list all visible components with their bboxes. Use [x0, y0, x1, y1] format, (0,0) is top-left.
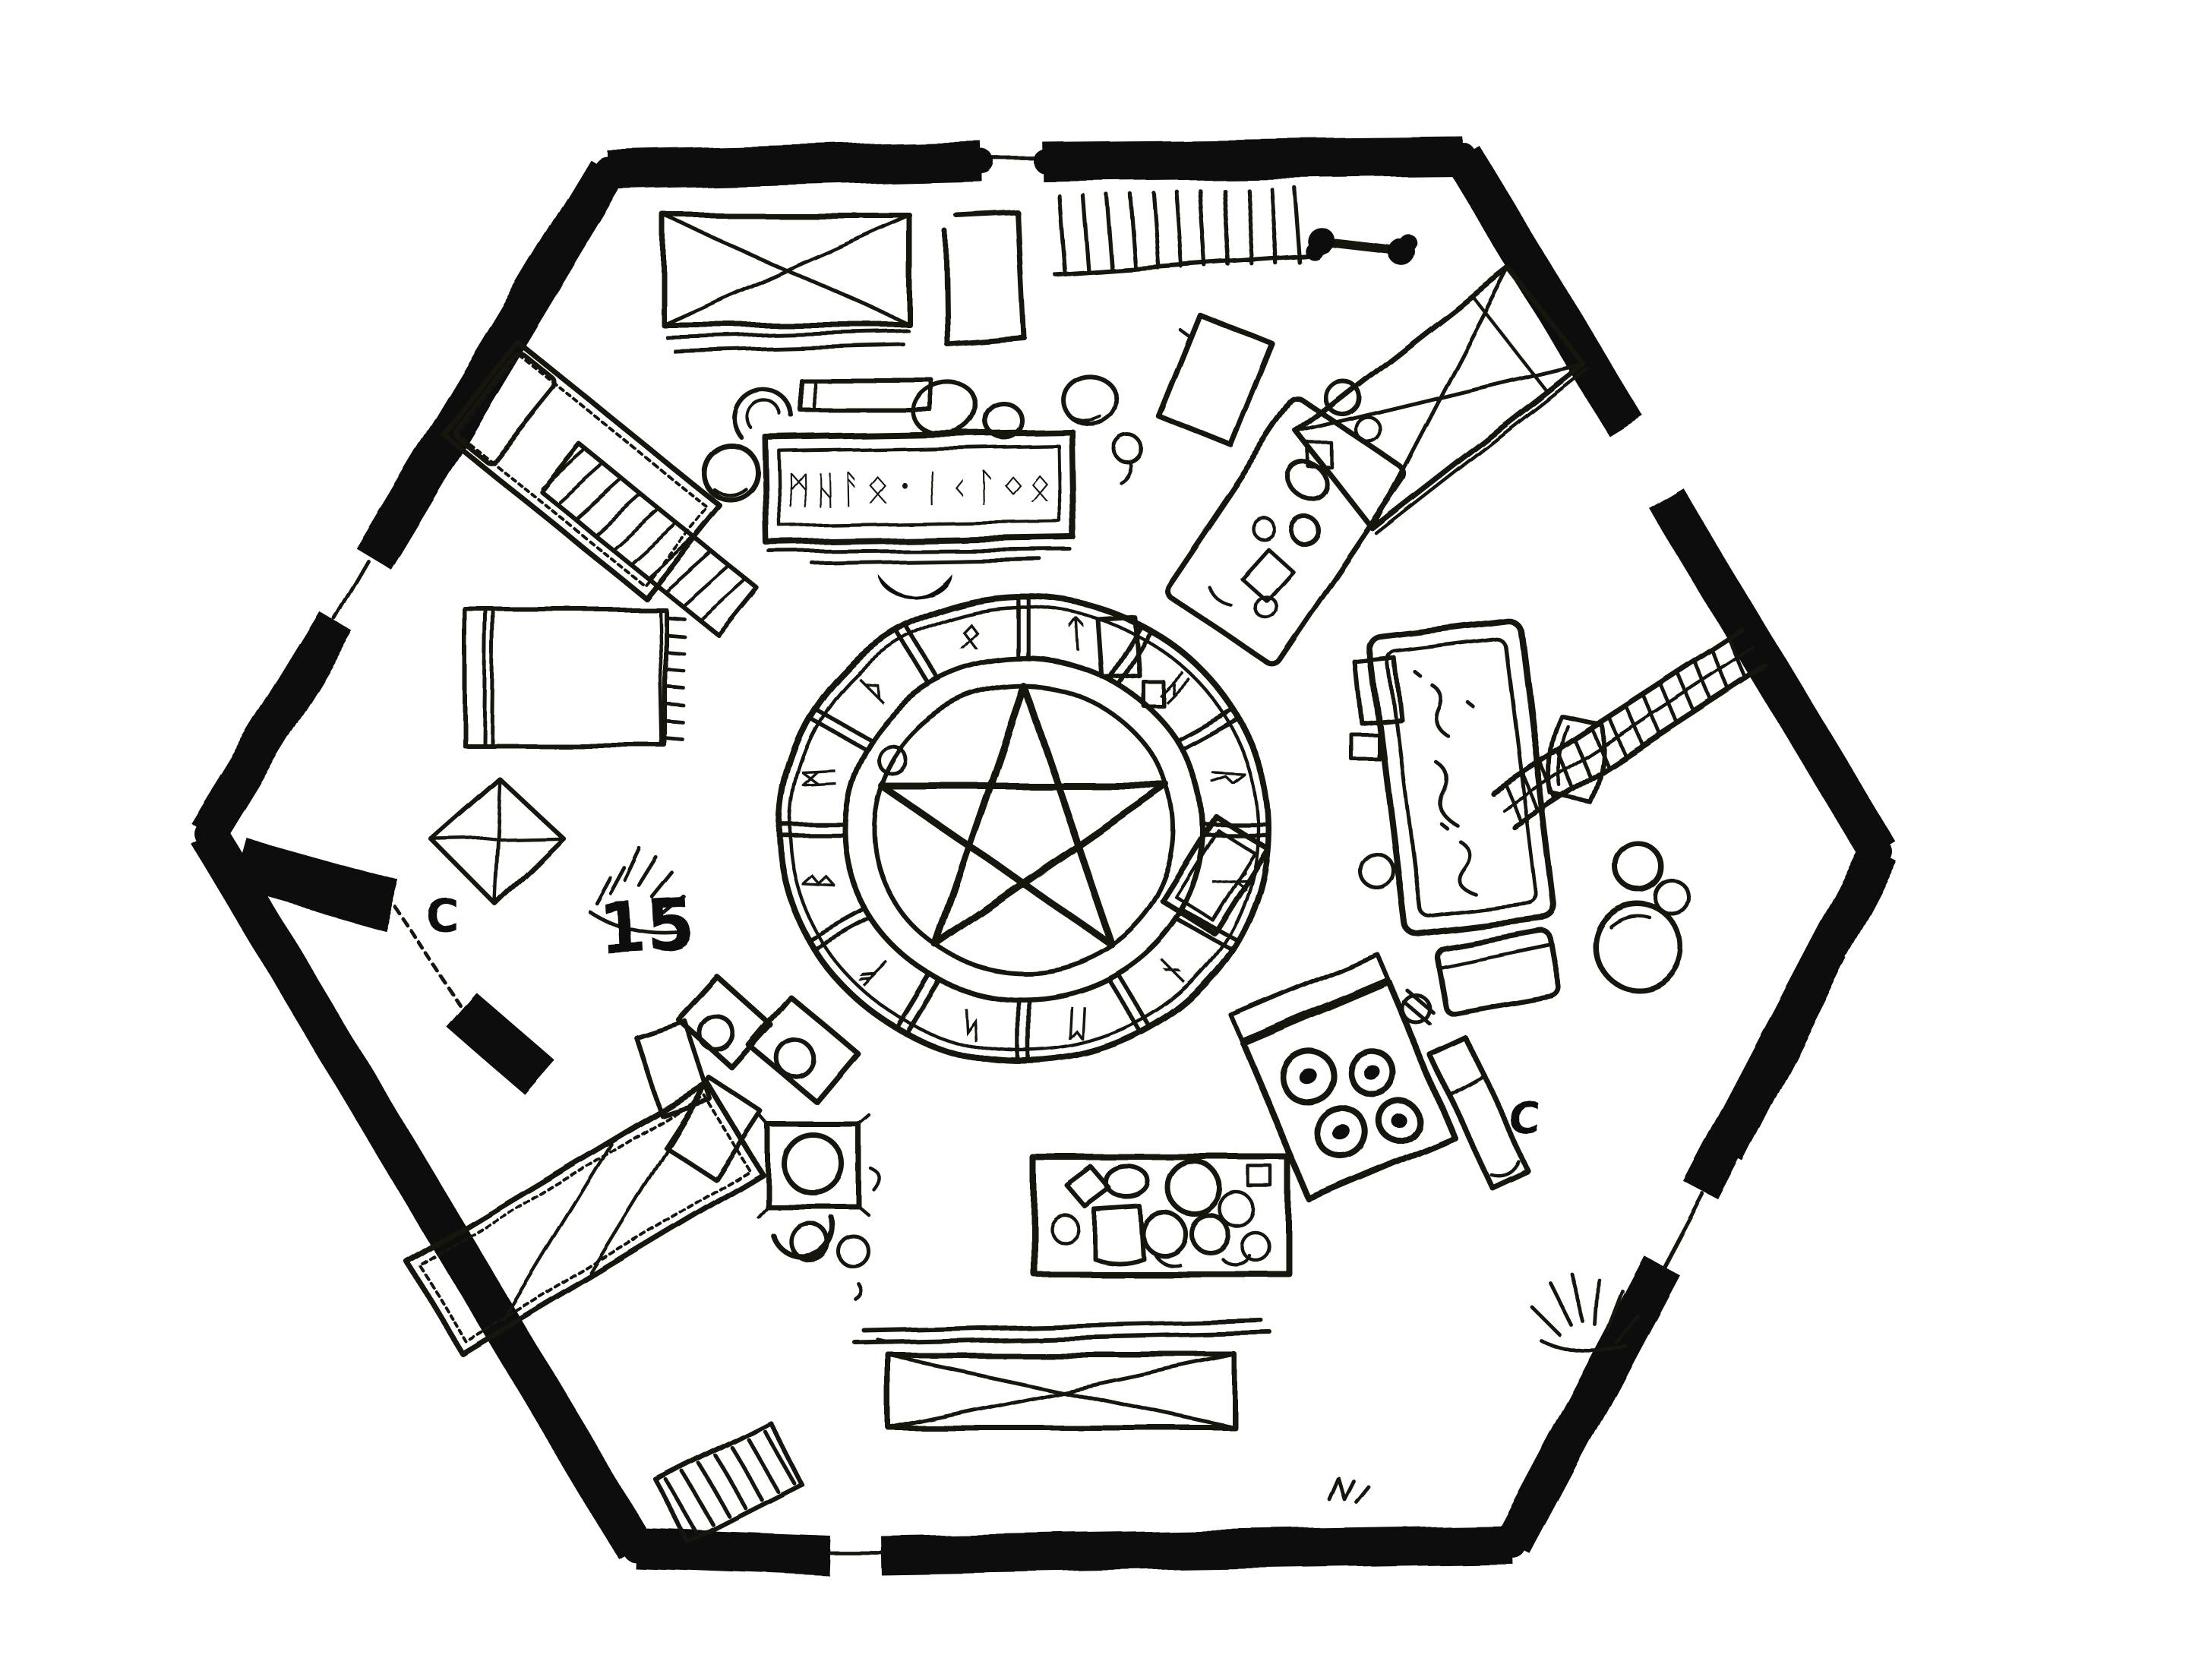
wall-inner-se-bar — [1729, 951, 1832, 1154]
square-rug-with-fringe — [465, 609, 684, 746]
ring-glyph: ᛏ — [1066, 613, 1090, 656]
wall-knob — [1449, 143, 1477, 170]
summoning-circle: ᛏᚺᚱᛉᚾᛖᛋᚠᛒᛗᚦᛟ — [779, 597, 1268, 1062]
cluttered-work-table — [1033, 1157, 1288, 1273]
wall-nw-upper — [374, 170, 608, 559]
circle-inner-ring — [845, 659, 1203, 999]
wall-knob — [194, 820, 222, 848]
floor-plan-canvas: ᛏᚺᚱᛉᚾᛖᛋᚠᛒᛗᚦᛟ — [0, 0, 2189, 1680]
wall-ne-lower — [1665, 497, 1879, 852]
pebble-with-tail — [1115, 436, 1142, 483]
wall-knob — [969, 149, 993, 173]
scribe-desk: ᛗᚺᚨᛟ᛫ᛁᚲᛚᛜᛟ — [766, 432, 1076, 602]
wall-nw-lower — [208, 623, 337, 834]
ring-glyph: ᛖ — [1066, 1002, 1090, 1045]
ring-glyph: ᛟ — [958, 613, 982, 656]
water-squiggle — [1436, 761, 1457, 826]
floor-plan-page: ᛏᚺᚱᛉᚾᛖᛋᚠᛒᛗᚦᛟ — [0, 0, 2189, 1680]
circle-outer-ring — [779, 597, 1268, 1062]
side-table-with-vessels — [1164, 396, 1407, 667]
crescent-stool — [879, 574, 952, 600]
wall-knob — [1499, 1531, 1527, 1558]
room-number-label: 15 — [597, 884, 698, 971]
wall-knob — [621, 1534, 649, 1562]
wall-bottom-left — [635, 1548, 829, 1555]
ring-rune-glyphs: ᛏᚺᚱᛉᚾᛖᛋᚠᛒᛗᚦᛟ — [798, 613, 1251, 1045]
wall-knob — [1865, 838, 1893, 866]
bucket — [1360, 854, 1393, 887]
storage-box — [945, 213, 1024, 343]
ring-glyph: ᛒ — [798, 869, 841, 893]
stove-with-four-burners — [1231, 943, 1482, 1200]
stool — [703, 445, 758, 500]
brazier-table — [758, 1113, 879, 1217]
bench-below-tub — [1436, 929, 1561, 1015]
floor-grill — [656, 1423, 801, 1543]
bed-with-pillow — [443, 342, 721, 598]
wall-knob — [594, 156, 621, 184]
wall-sw — [208, 834, 635, 1548]
small-table — [1147, 310, 1272, 445]
ring-glyph: ᛗ — [798, 766, 841, 791]
wall-knob — [1033, 149, 1057, 173]
hatched-shelf — [1053, 187, 1307, 275]
wall-se-lower — [1513, 1265, 1662, 1545]
paper — [1066, 1167, 1109, 1206]
wall-buttress-lower — [460, 1009, 541, 1078]
pentagram-circle — [873, 687, 1174, 972]
open-box — [1094, 1206, 1142, 1262]
bone-handle — [1306, 227, 1420, 268]
door-se-line — [1663, 1194, 1703, 1268]
door-nw-line — [336, 562, 369, 620]
hexagon-walls — [194, 143, 1893, 1562]
water-squiggle — [1452, 838, 1474, 895]
door-label-right: C — [1508, 1093, 1542, 1146]
crate-with-x-lid — [664, 216, 910, 351]
cauldrons — [1595, 845, 1689, 989]
door-label-left: C — [427, 891, 460, 944]
long-chest-with-x — [855, 1322, 1271, 1428]
ring-glyph: ᚱ — [1207, 766, 1250, 791]
wall-top-left — [608, 161, 981, 170]
illegible-inscription: ᛗᚺᚨᛟ᛫ᛁᚲᛚᛜᛟ — [786, 463, 1054, 513]
floor-scribble — [1328, 1476, 1367, 1501]
wall-top-right — [1042, 156, 1463, 161]
wall-bottom-right — [881, 1545, 1513, 1555]
round-chair — [728, 383, 794, 437]
ring-glyph: ᛋ — [958, 1002, 982, 1045]
ring-segment-dividers — [782, 600, 1265, 1059]
water-squiggle — [1433, 685, 1449, 737]
